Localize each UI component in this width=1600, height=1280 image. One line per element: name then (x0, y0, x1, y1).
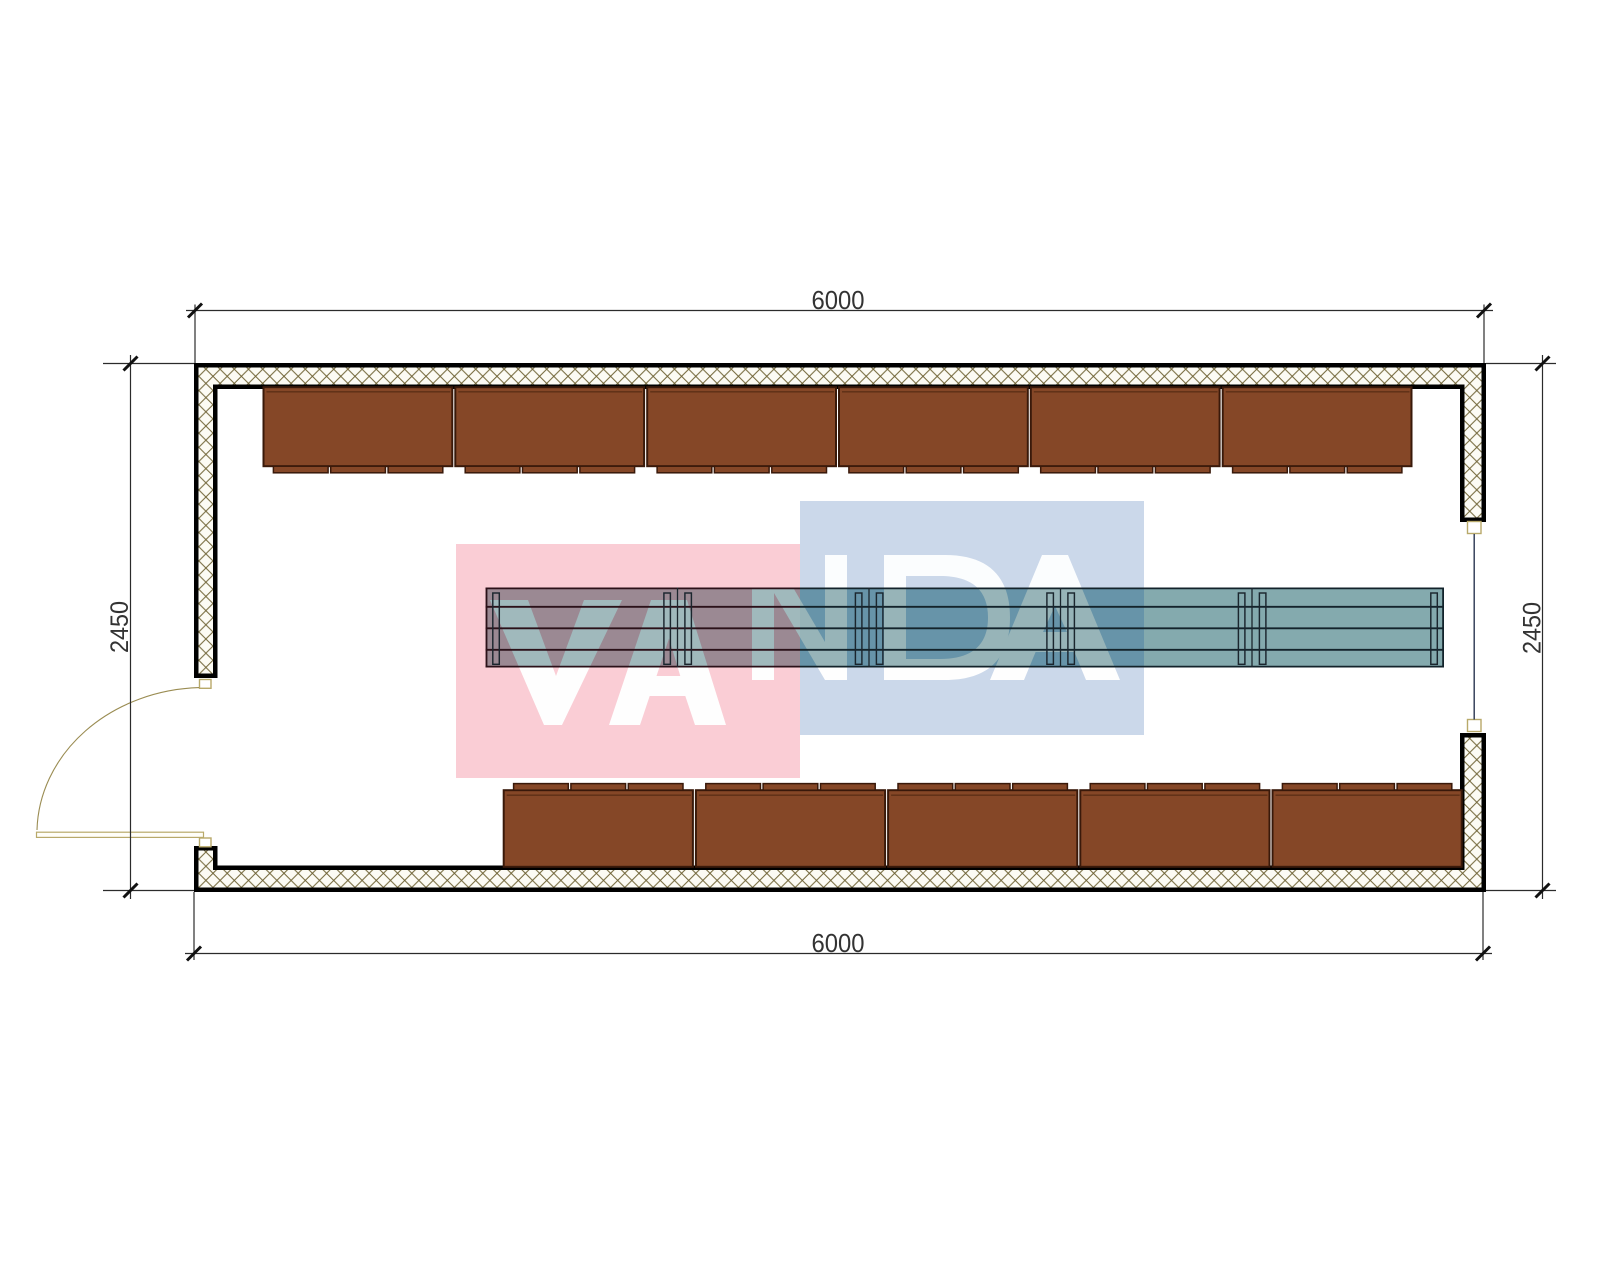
svg-text:2450: 2450 (1519, 602, 1547, 654)
svg-text:6000: 6000 (812, 928, 865, 958)
svg-text:6000: 6000 (812, 285, 865, 315)
svg-text:2450: 2450 (106, 601, 134, 653)
